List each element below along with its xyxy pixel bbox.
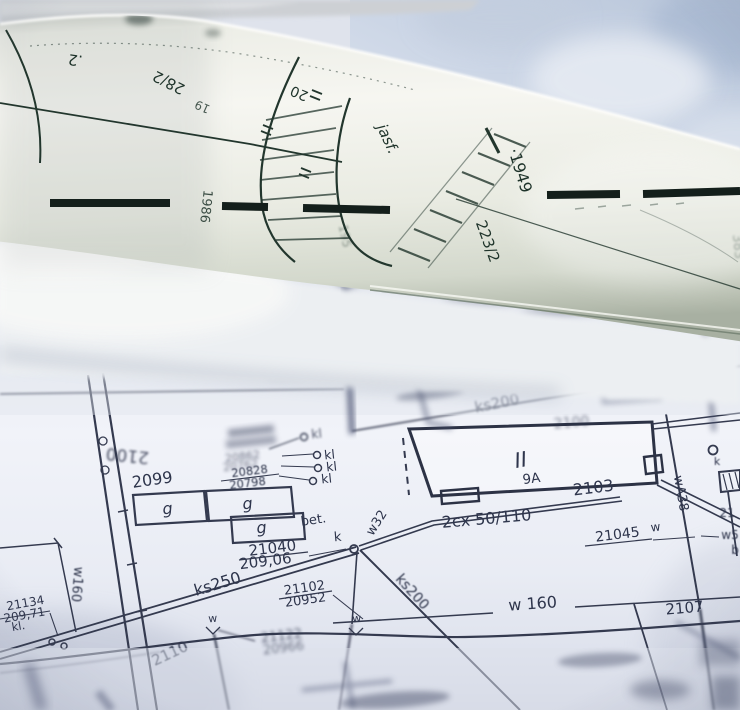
- photo-canvas: 2099 20828 20798 kl kl kl kl g g g bet. …: [0, 0, 740, 710]
- blueprint-photo: 2099 20828 20798 kl kl kl kl g g g bet. …: [0, 0, 740, 710]
- photo-vignette: [0, 0, 740, 710]
